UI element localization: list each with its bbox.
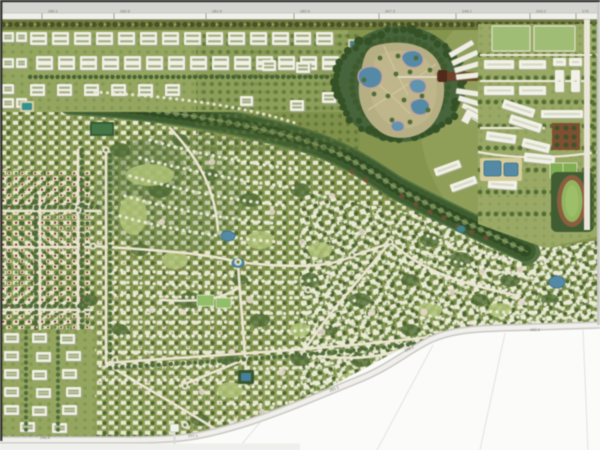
svg-text:281.6: 281.6 bbox=[212, 8, 223, 13]
svg-text:282.6: 282.6 bbox=[120, 8, 131, 13]
svg-text:170: 170 bbox=[582, 8, 589, 13]
svg-text:347.3: 347.3 bbox=[385, 8, 396, 13]
svg-text:282.2: 282.2 bbox=[530, 327, 541, 332]
svg-text:243.2: 243.2 bbox=[536, 8, 547, 13]
svg-text:280.1: 280.1 bbox=[48, 8, 59, 13]
svg-text:282.6: 282.6 bbox=[300, 8, 311, 13]
svg-text:246.4: 246.4 bbox=[40, 435, 51, 440]
svg-text:207.1: 207.1 bbox=[188, 433, 199, 438]
svg-text:248.1: 248.1 bbox=[462, 8, 473, 13]
